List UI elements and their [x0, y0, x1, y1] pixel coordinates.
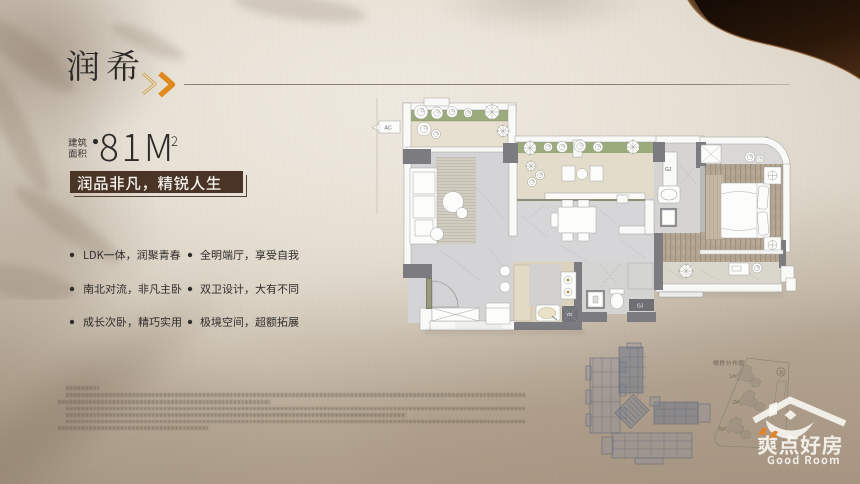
svg-text:YD: YD	[566, 312, 573, 317]
svg-text:AC: AC	[385, 126, 392, 132]
svg-text:5#: 5#	[719, 427, 726, 433]
svg-text:2#: 2#	[733, 400, 740, 406]
svg-text:GJ: GJ	[637, 304, 644, 310]
svg-text:1#: 1#	[729, 374, 736, 380]
svg-text:GJ: GJ	[665, 167, 672, 173]
